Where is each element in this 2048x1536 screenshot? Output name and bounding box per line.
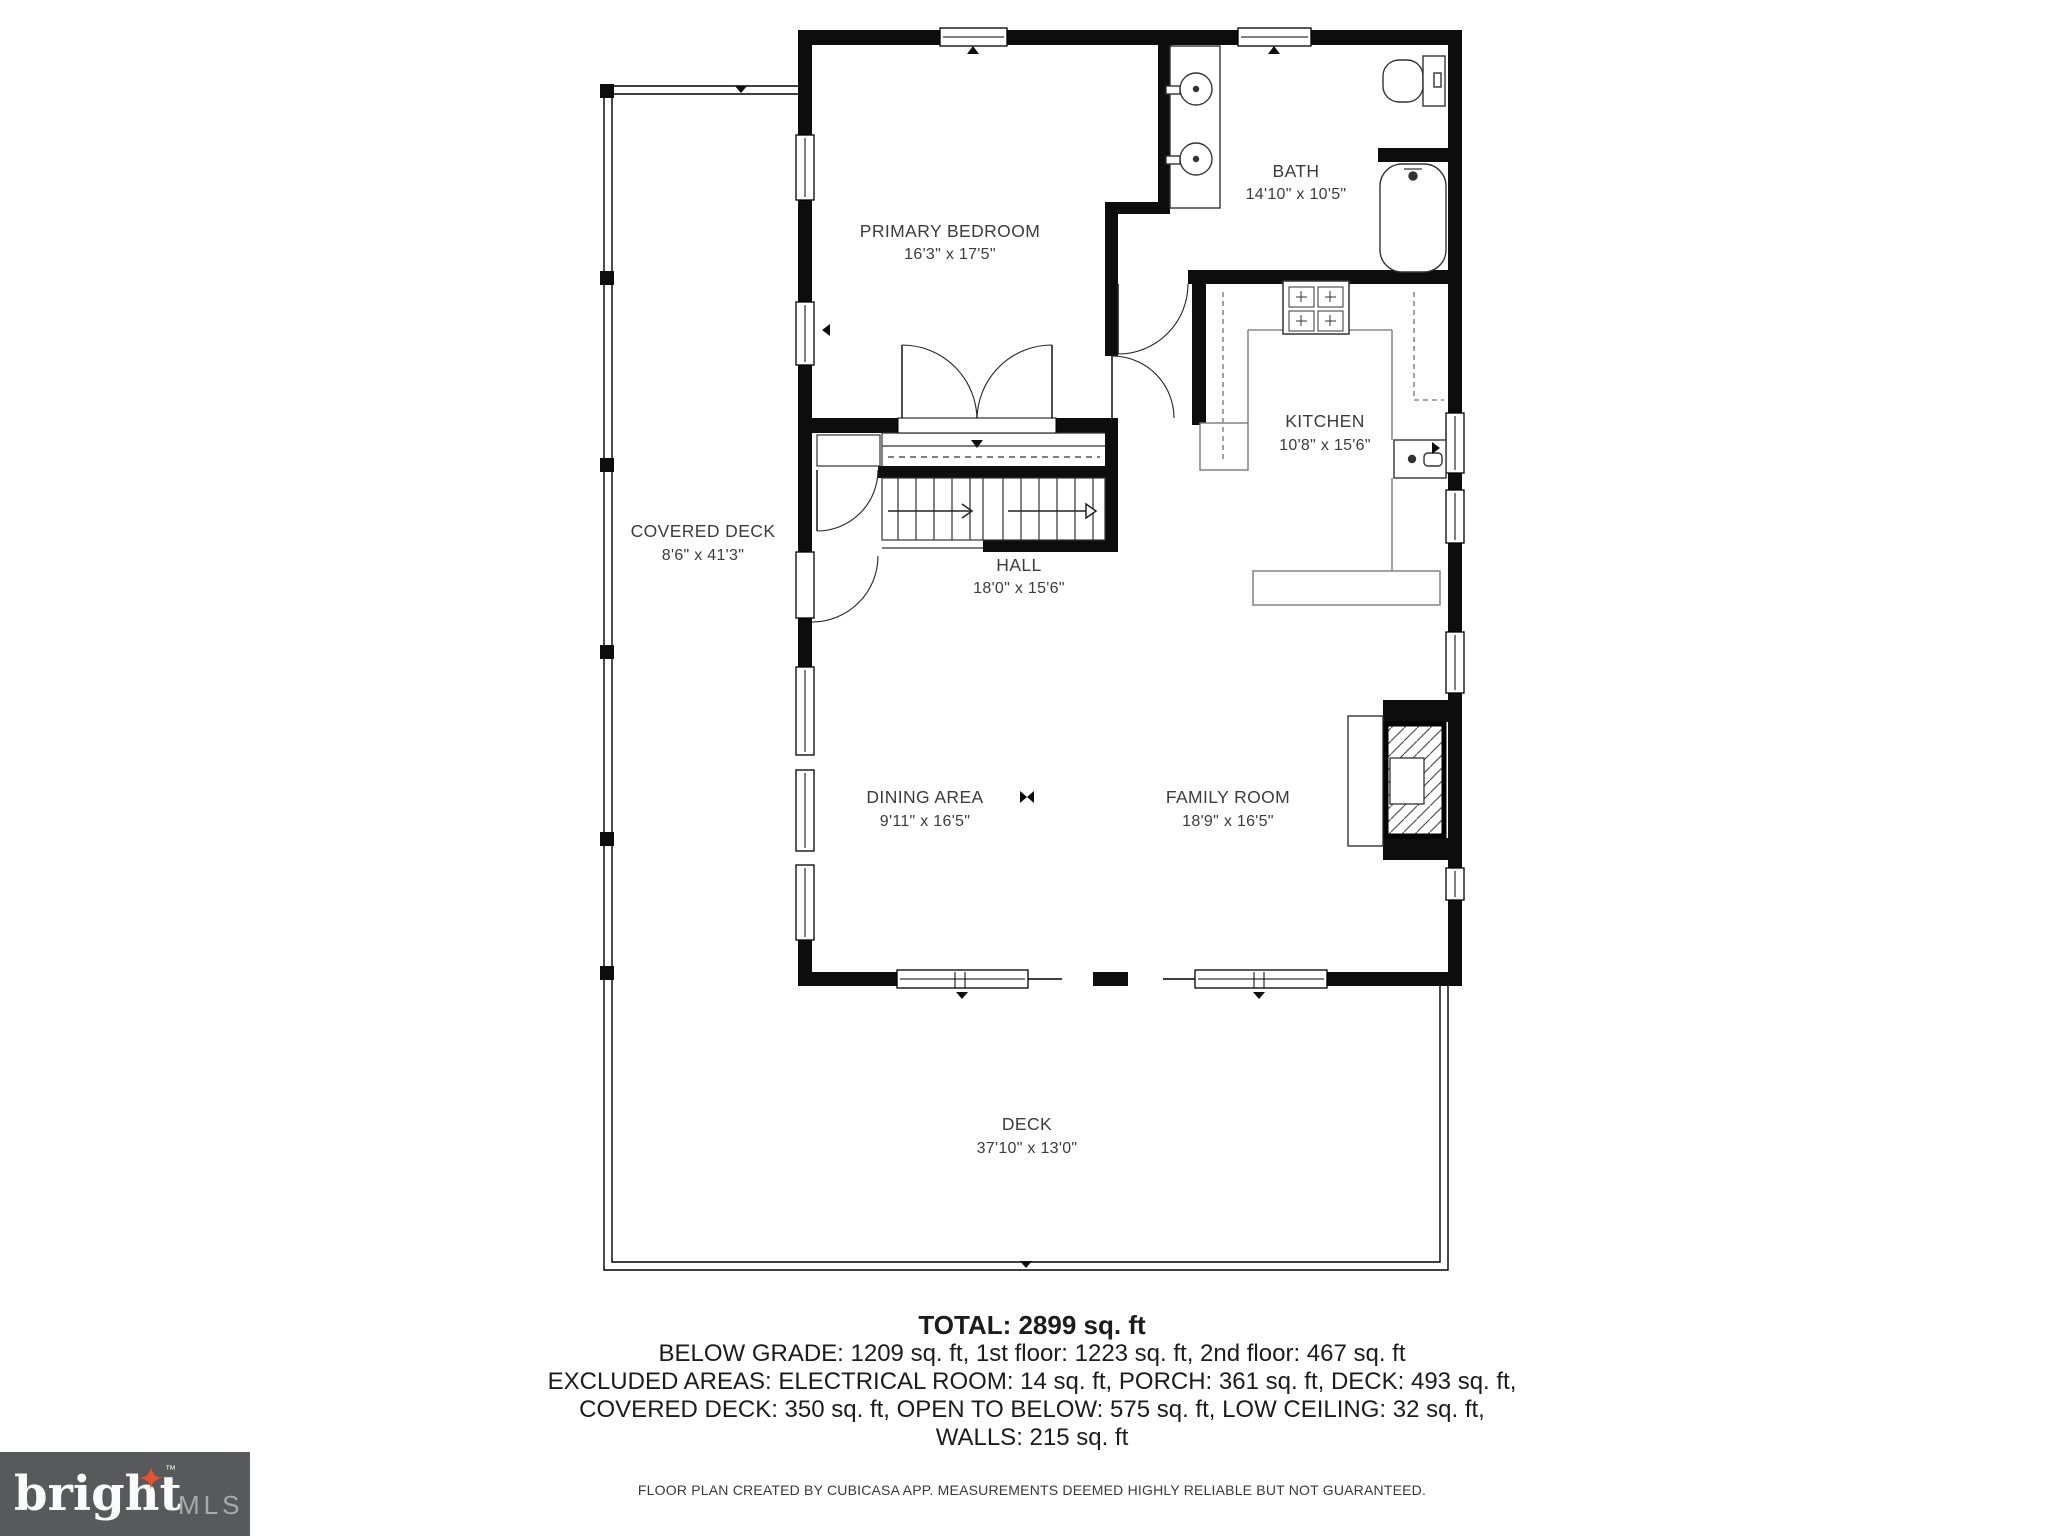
bright-mls-logo: bright ™ MLS xyxy=(0,1452,250,1536)
summary-line-2: EXCLUDED AREAS: ELECTRICAL ROOM: 14 sq. … xyxy=(512,1368,1552,1396)
tick-markers xyxy=(735,46,1440,1268)
room-label-hall: HALL xyxy=(996,555,1041,575)
summary-line-1: BELOW GRADE: 1209 sq. ft, 1st floor: 122… xyxy=(512,1340,1552,1368)
room-dims-dining-area: 9'11" x 16'5" xyxy=(880,813,970,830)
summary-line-3: COVERED DECK: 350 sq. ft, OPEN TO BELOW:… xyxy=(512,1396,1552,1424)
floor-plan-drawing: PRIMARY BEDROOM 16'3" x 17'5" BATH 14'10… xyxy=(0,0,2048,1300)
stairs xyxy=(882,478,1105,548)
room-label-deck: DECK xyxy=(1002,1114,1052,1134)
room-label-dining-area: DINING AREA xyxy=(866,787,983,807)
room-label-kitchen: KITCHEN xyxy=(1285,411,1365,431)
room-dims-covered-deck: 8'6" x 41'3" xyxy=(662,547,744,564)
fireplace xyxy=(1348,716,1444,846)
toilet xyxy=(1383,56,1445,106)
stove xyxy=(1283,281,1349,334)
logo-star-icon xyxy=(140,1467,162,1489)
room-dims-bath: 14'10" x 10'5" xyxy=(1246,186,1347,203)
bathtub xyxy=(1380,164,1446,272)
deck-boundaries xyxy=(604,86,1448,1270)
landing-corridor xyxy=(817,433,1105,466)
floor-plan-page: PRIMARY BEDROOM 16'3" x 17'5" BATH 14'10… xyxy=(0,0,2048,1536)
room-dims-kitchen: 10'8" x 15'6" xyxy=(1279,437,1371,454)
room-dims-hall: 18'0" x 15'6" xyxy=(973,580,1065,597)
logo-trademark: ™ xyxy=(165,1464,176,1476)
total-area: TOTAL: 2899 sq. ft xyxy=(512,1310,1552,1340)
room-label-primary-bedroom: PRIMARY BEDROOM xyxy=(860,221,1040,241)
bath-vanity xyxy=(1166,46,1220,208)
room-label-family-room: FAMILY ROOM xyxy=(1166,787,1290,807)
area-summary: TOTAL: 2899 sq. ft BELOW GRADE: 1209 sq.… xyxy=(512,1310,1552,1452)
kitchen-sink xyxy=(1394,440,1446,478)
room-label-covered-deck: COVERED DECK xyxy=(631,521,776,541)
room-dims-primary-bedroom: 16'3" x 17'5" xyxy=(904,246,996,263)
room-label-bath: BATH xyxy=(1273,161,1320,181)
logo-mls-text: MLS xyxy=(178,1490,243,1521)
summary-line-4: WALLS: 215 sq. ft xyxy=(512,1424,1552,1452)
room-dims-family-room: 18'9" x 16'5" xyxy=(1182,813,1274,830)
room-labels: PRIMARY BEDROOM 16'3" x 17'5" BATH 14'10… xyxy=(631,161,1371,1157)
disclaimer-text: FLOOR PLAN CREATED BY CUBICASA APP. MEAS… xyxy=(512,1482,1552,1498)
room-dims-deck: 37'10" x 13'0" xyxy=(977,1140,1078,1157)
